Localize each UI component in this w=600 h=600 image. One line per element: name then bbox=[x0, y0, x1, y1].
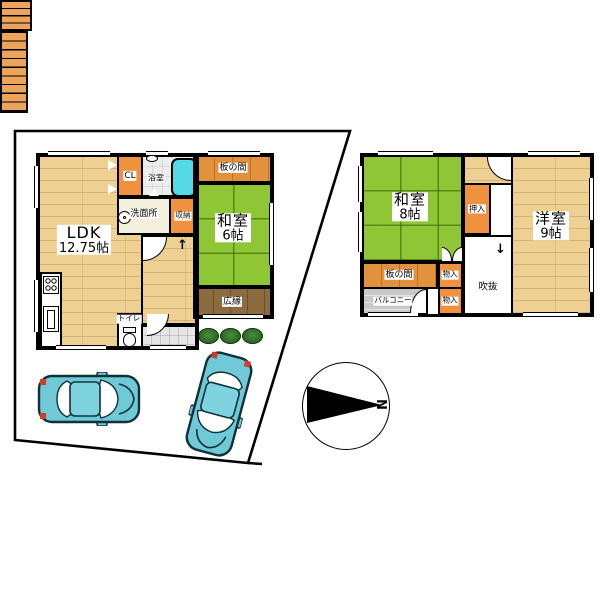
label-itanoma-2f: 板の間 bbox=[384, 270, 413, 280]
entrance-door bbox=[150, 345, 186, 350]
window bbox=[269, 203, 274, 265]
label-bath: 浴室 bbox=[147, 173, 165, 182]
tree-icon bbox=[220, 328, 241, 344]
window bbox=[146, 151, 168, 156]
floorplan-canvas: ↑ LDK 12.75帖 CL 浴室 板の間 洗面所 収納 和室 6帖 広縁 ト… bbox=[0, 0, 600, 600]
label-storage-2f-b: 物入 bbox=[442, 297, 459, 306]
label-balcony: バルコニー bbox=[373, 297, 412, 306]
window bbox=[523, 312, 578, 317]
toilet-bowl-icon bbox=[123, 333, 136, 347]
window bbox=[589, 178, 594, 220]
label-washroom: 洗面所 bbox=[129, 209, 158, 219]
yoshitsu-size: 9帖 bbox=[535, 227, 567, 241]
ldk-name: LDK bbox=[59, 225, 109, 242]
window bbox=[208, 151, 260, 156]
bath-door-mark bbox=[149, 188, 159, 196]
washitsu8-size: 8帖 bbox=[394, 208, 426, 222]
window bbox=[378, 151, 433, 156]
label-itanoma-1f: 板の間 bbox=[218, 163, 247, 173]
washitsu6-name: 和室 bbox=[217, 213, 249, 229]
label-storage-1f: 収納 bbox=[175, 212, 192, 221]
label-ldk: LDK 12.75帖 bbox=[57, 225, 111, 255]
sliding-door-mark bbox=[108, 184, 117, 194]
compass: N bbox=[302, 362, 390, 450]
north-label: N bbox=[373, 399, 388, 410]
yoshitsu-name: 洋室 bbox=[535, 211, 567, 227]
window bbox=[34, 280, 39, 332]
label-washitsu-8: 和室 8帖 bbox=[392, 192, 428, 221]
label-yoshitsu-9: 洋室 9帖 bbox=[533, 211, 569, 240]
ldk-size: 12.75帖 bbox=[59, 242, 109, 256]
window bbox=[48, 151, 110, 156]
bathtub-icon bbox=[171, 158, 197, 197]
washitsu6-size: 6帖 bbox=[217, 229, 249, 243]
stairs-up-arrow: ↑ bbox=[177, 239, 188, 252]
tree-icon bbox=[198, 328, 219, 344]
stove-icon bbox=[43, 276, 59, 294]
window bbox=[34, 166, 39, 208]
kitchen-sink-icon bbox=[43, 306, 59, 332]
stairs-down-arrow: ↓ bbox=[495, 243, 506, 256]
window bbox=[358, 212, 363, 252]
label-oshiire: 押入 bbox=[468, 204, 486, 213]
window bbox=[56, 345, 106, 350]
window bbox=[203, 314, 263, 319]
window bbox=[528, 151, 580, 156]
car-icon bbox=[37, 372, 141, 426]
tree-icon bbox=[242, 328, 263, 344]
label-void: 吹抜 bbox=[477, 283, 498, 294]
label-cl: CL bbox=[123, 171, 136, 181]
label-washitsu-6: 和室 6帖 bbox=[215, 213, 251, 242]
window bbox=[358, 166, 363, 202]
label-toilet: トイレ bbox=[117, 315, 142, 324]
label-hiroen: 広縁 bbox=[222, 297, 242, 307]
window bbox=[589, 248, 594, 292]
label-storage-2f-a: 物入 bbox=[442, 271, 459, 280]
sliding-door-mark bbox=[108, 160, 117, 170]
washbasin-drain-icon bbox=[123, 216, 126, 219]
washitsu8-name: 和室 bbox=[394, 192, 426, 208]
bath-sink-icon bbox=[146, 155, 158, 162]
